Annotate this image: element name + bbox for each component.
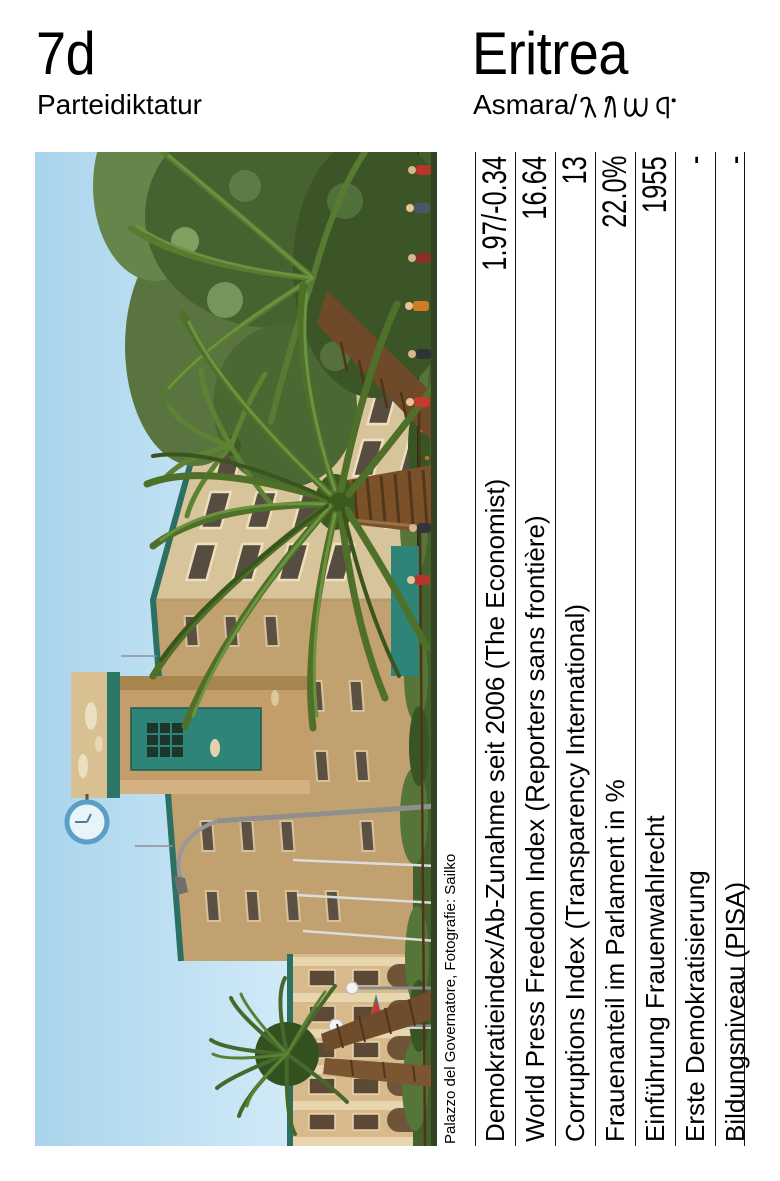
table-row: World Press Freedom Index (Reporters san… <box>515 152 555 1146</box>
stat-label: Frauenanteil im Parlament in % <box>600 779 631 1142</box>
asmara-photo <box>35 152 437 1146</box>
stat-value: 13 <box>556 156 595 184</box>
stat-value: 22.0% <box>596 156 635 228</box>
stat-label: World Press Freedom Index (Reporters san… <box>520 515 551 1142</box>
capital-label: Asmara/ <box>473 91 680 120</box>
stat-value: - <box>716 156 755 164</box>
stat-label: Corruptions Index (Transparency Internat… <box>560 604 591 1142</box>
country-title: Eritrea <box>472 24 628 84</box>
table-row: Bildungsniveau (PISA) - <box>715 152 755 1146</box>
page: 7d Parteidiktatur Eritrea Asmara/ <box>0 0 780 1181</box>
stat-label: Erste Demokratisierung <box>680 870 711 1142</box>
table-row: Erste Demokratisierung - <box>675 152 715 1146</box>
stat-label: Einführung Frauenwahlrecht <box>640 815 671 1142</box>
photo-credit-text: Palazzo del Governatore, Fotografie: Sai… <box>441 150 460 1146</box>
foreground-hedge-strip <box>431 152 437 1146</box>
photo-credit: Palazzo del Governatore, Fotografie: Sai… <box>441 152 460 1146</box>
stat-value: - <box>676 156 715 164</box>
table-row: Corruptions Index (Transparency Internat… <box>555 152 595 1146</box>
card-code: 7d <box>36 24 95 84</box>
regime-type-label: Parteidiktatur <box>37 91 202 119</box>
table-row: Einführung Frauenwahlrecht 1955 <box>635 152 675 1146</box>
stat-value: 1955 <box>636 156 675 213</box>
stat-label: Demokratieindex/Ab-Zunahme seit 2006 (Th… <box>480 479 511 1142</box>
stats-table: Demokratieindex/Ab-Zunahme seit 2006 (Th… <box>475 152 745 1146</box>
stat-label: Bildungsniveau (PISA) <box>720 882 751 1142</box>
table-row: Frauenanteil im Parlament in % 22.0% <box>595 152 635 1146</box>
table-row: Demokratieindex/Ab-Zunahme seit 2006 (Th… <box>475 152 515 1146</box>
stat-value: 1.97/-0.34 <box>476 156 515 271</box>
geez-asmara-text <box>579 91 680 120</box>
capital-latin: Asmara/ <box>473 91 577 119</box>
stat-value: 16.64 <box>516 156 555 220</box>
